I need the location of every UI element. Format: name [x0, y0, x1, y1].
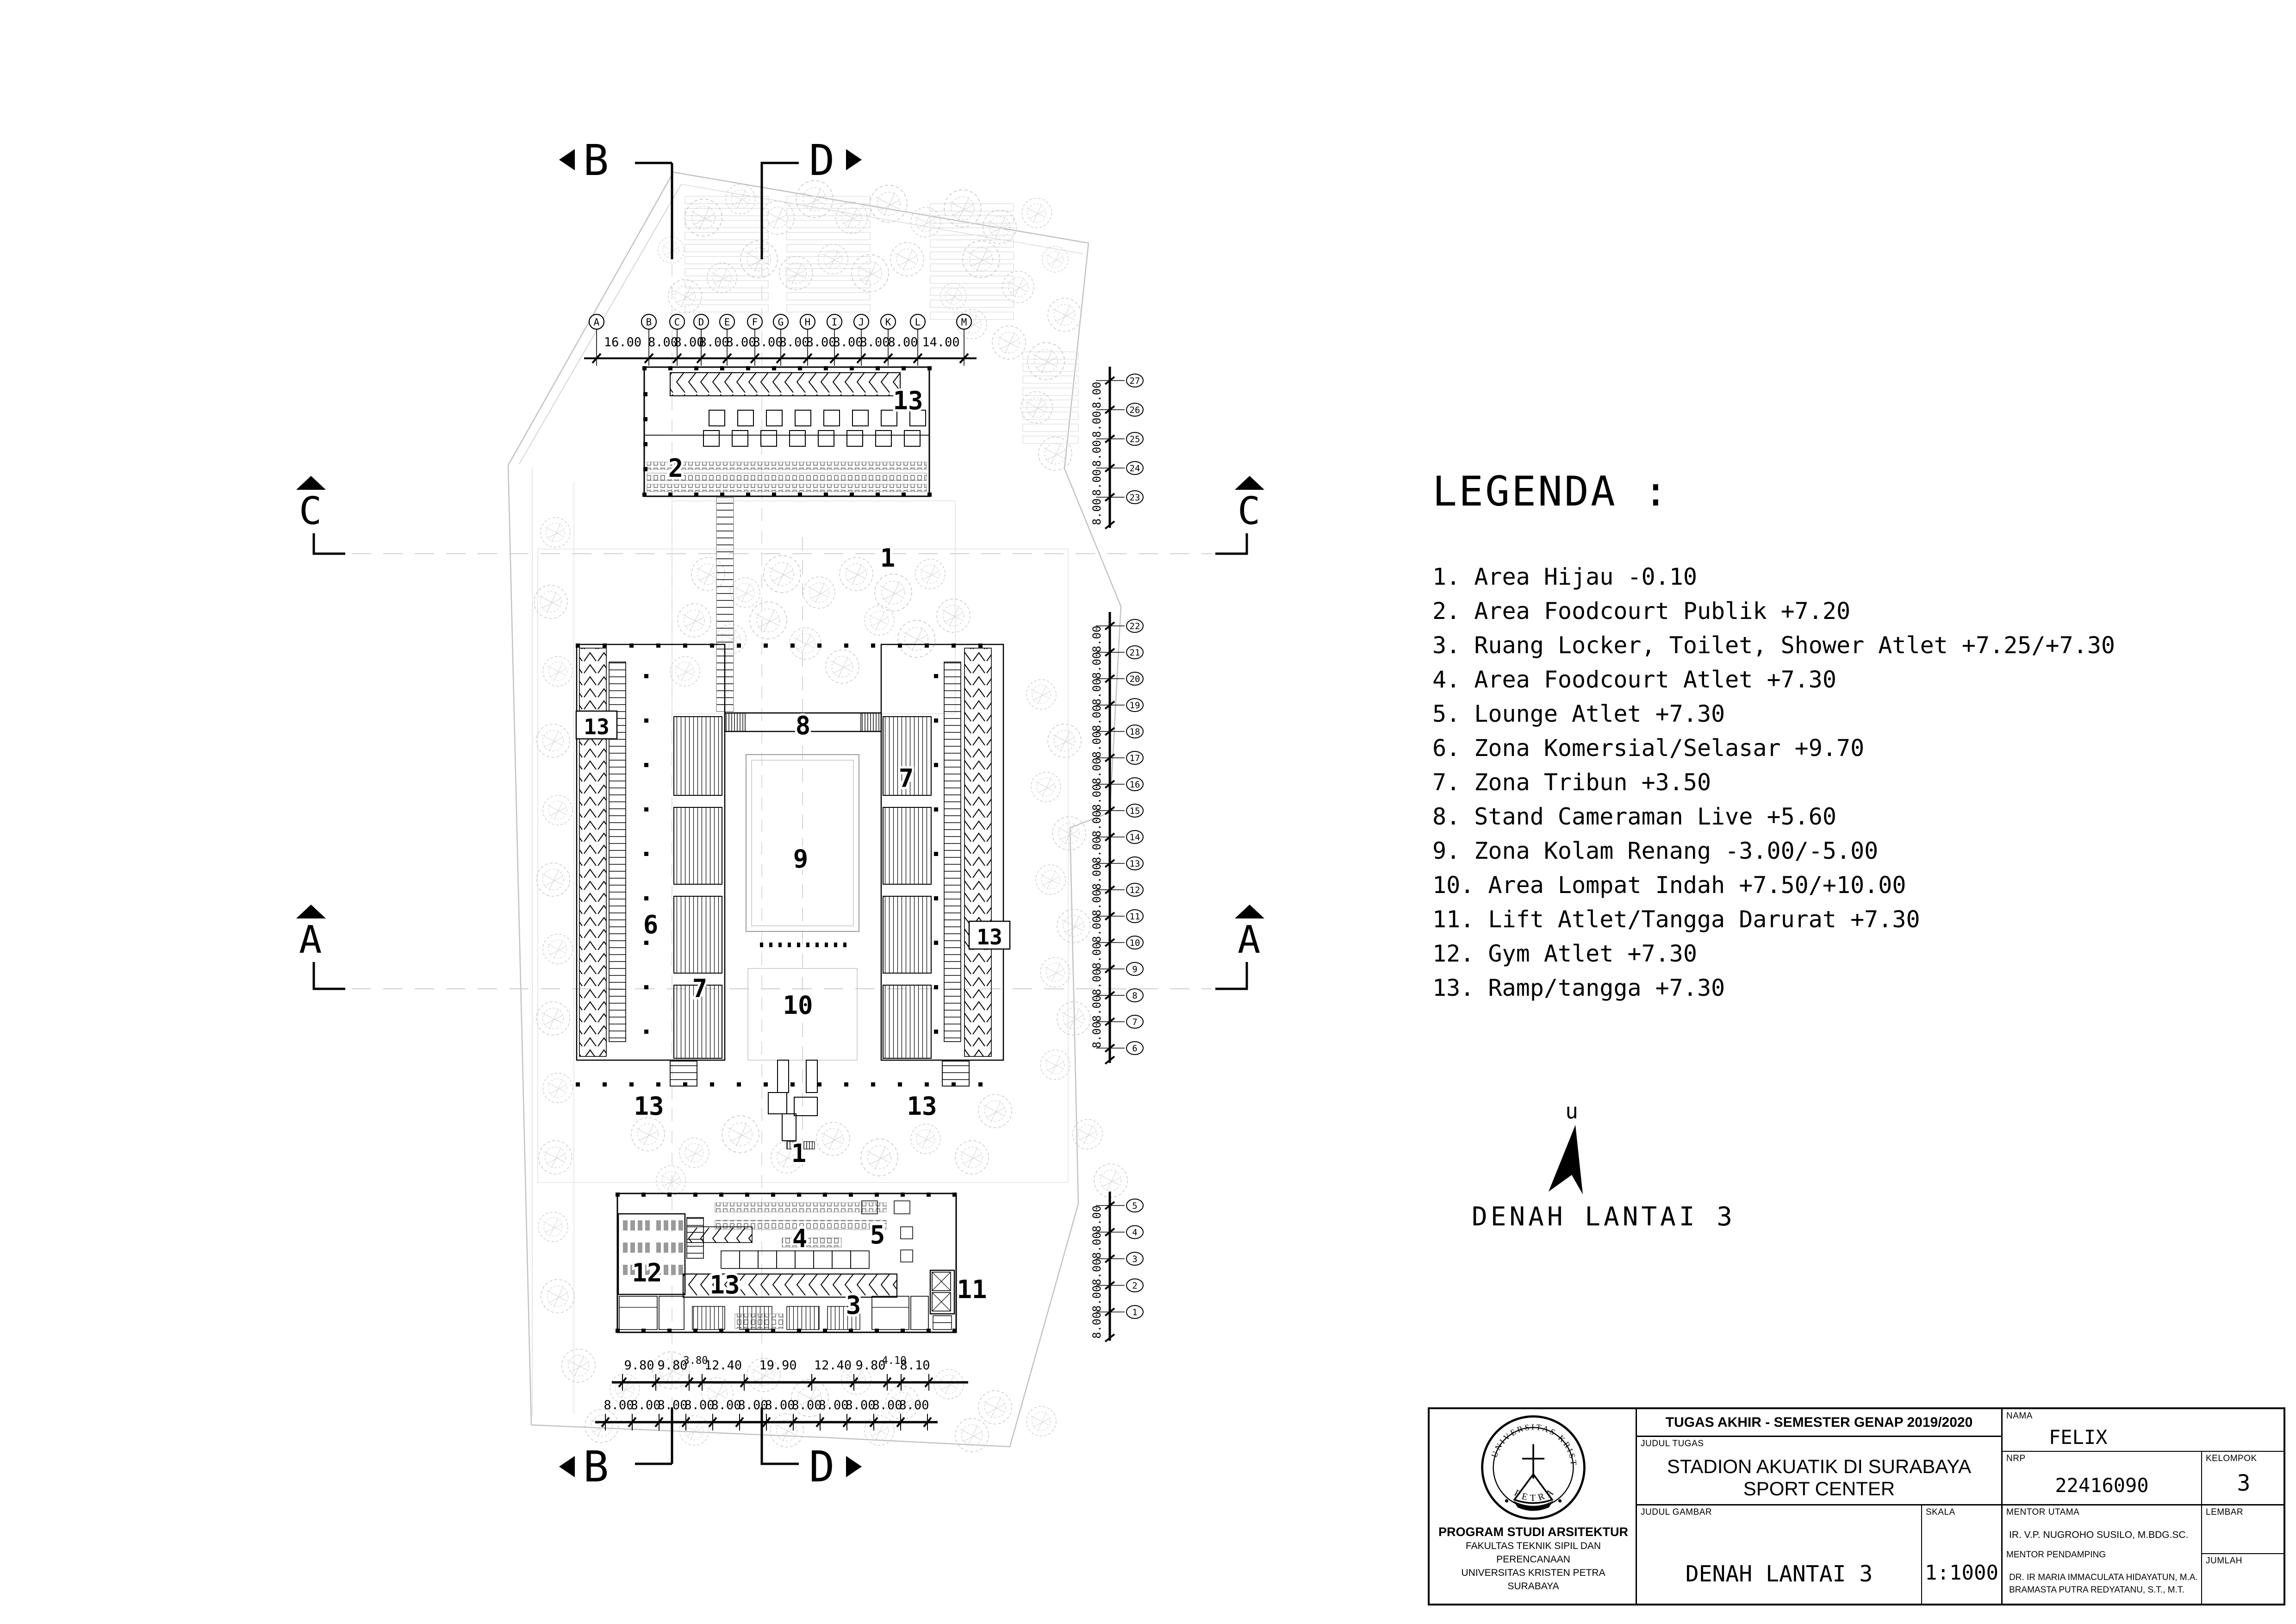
dim-label: 8.00: [1090, 1259, 1103, 1286]
grid-letter: H: [805, 317, 811, 328]
tree-icon: [726, 184, 755, 214]
dim-label: 8.00: [888, 335, 918, 350]
svg-text:B: B: [583, 136, 609, 185]
plan-label: 7: [692, 974, 708, 1003]
tree-icon: [865, 606, 894, 635]
tree-icon: [1036, 865, 1065, 894]
grid-bubble-number: 22: [1130, 621, 1140, 631]
section-marker-c-right: C: [1215, 476, 1264, 554]
tree-icon: [543, 1073, 572, 1103]
svg-text:C: C: [299, 489, 322, 533]
grid-bubble-number: 8: [1132, 991, 1137, 1001]
tree-icon: [934, 1369, 964, 1399]
section-marker-a-right: A: [1215, 905, 1264, 989]
drawing-caption: DENAH LANTAI 3: [1472, 1202, 1736, 1232]
tree-icon: [543, 656, 572, 686]
grid-letter: K: [885, 317, 891, 328]
student-name: FELIX: [2049, 1426, 2285, 1449]
dim-label: 8.00: [1090, 626, 1103, 653]
dim-label: 8.00: [1090, 1206, 1103, 1232]
grid-letter: L: [915, 317, 921, 328]
section-cut-lines: [352, 264, 1212, 1403]
dim-label: 8.00: [1090, 1022, 1103, 1049]
pool-zone: [746, 755, 859, 1149]
grid-letter: J: [859, 317, 865, 328]
tree-icon: [562, 1349, 595, 1382]
university-logo-icon: UNIVERSITAS KRISTEN PETRA: [1478, 1412, 1589, 1523]
tree-icon: [940, 283, 966, 309]
grid-letter: G: [778, 317, 784, 328]
dim-label: 8.00: [699, 335, 729, 350]
tree-icon: [1052, 817, 1086, 850]
plan-label: 4: [792, 1224, 808, 1253]
plan-label: 5: [870, 1220, 885, 1249]
svg-text:u: u: [1565, 1099, 1578, 1124]
dim-label: 19.90: [759, 1358, 796, 1373]
section-marker-b-bottom: B: [559, 1407, 672, 1492]
legend-item: 1. Area Hijau -0.10: [1432, 560, 2242, 594]
dim-label: 8.00: [726, 335, 756, 350]
tree-icon: [840, 557, 873, 591]
plan-label: 7: [899, 764, 914, 793]
dim-label: 8.00: [818, 1398, 848, 1412]
svg-text:D: D: [809, 136, 834, 185]
dim-label: 8.00: [738, 1398, 768, 1412]
plan-label: 10: [783, 991, 813, 1020]
grid-letter: F: [752, 317, 758, 328]
grid-bubble-number: 7: [1132, 1017, 1137, 1027]
tree-icon: [770, 1414, 803, 1447]
tree-icon: [911, 207, 940, 237]
grid-bubble-number: 14: [1130, 832, 1140, 843]
plan-label: 3: [846, 1291, 861, 1320]
legend: LEGENDA : 1. Area Hijau -0.102. Area Foo…: [1432, 468, 2242, 1005]
dim-label: 8.00: [1090, 1312, 1103, 1339]
student-id: 22416090: [2003, 1474, 2201, 1497]
dim-label: 8.00: [753, 335, 783, 350]
plan-label: 1: [880, 543, 896, 573]
tree-icon: [1039, 437, 1072, 470]
dim-label: 8.00: [791, 1398, 821, 1412]
dim-label: 8.00: [1090, 1285, 1103, 1312]
dim-label: 8.00: [1090, 469, 1103, 496]
legend-item: 11. Lift Atlet/Tangga Darurat +7.30: [1432, 902, 2242, 937]
tree-icon: [761, 201, 794, 234]
dim-label: 9.80: [624, 1358, 654, 1373]
tree-icon: [539, 1141, 572, 1174]
grid-bubble-number: 10: [1130, 938, 1140, 948]
svg-text:A: A: [299, 918, 322, 962]
tree-icon: [1040, 957, 1070, 987]
tree-icon: [538, 1212, 568, 1242]
tree-icon: [890, 243, 924, 276]
tree-icon: [750, 602, 787, 639]
tree-icon: [679, 1138, 709, 1168]
grid-bubble-number: 16: [1130, 780, 1140, 790]
dim-label: 8.00: [648, 335, 678, 350]
plan-label: 6: [643, 910, 659, 939]
section-marker-a-left: A: [296, 905, 345, 989]
legend-item: 12. Gym Atlet +7.30: [1432, 937, 2242, 971]
legend-item: 3. Ruang Locker, Toilet, Shower Atlet +7…: [1432, 628, 2242, 662]
dim-label: 8.00: [845, 1398, 875, 1412]
plan-label: 13: [584, 714, 609, 739]
dim-label: 12.40: [814, 1358, 852, 1373]
plan-label: 1: [791, 1139, 807, 1168]
legend-title: LEGENDA :: [1432, 468, 2242, 515]
tree-icon: [543, 795, 572, 825]
tree-icon: [536, 1002, 570, 1035]
tree-icon: [818, 244, 848, 274]
building-athlete-block: [617, 1193, 956, 1332]
tree-icon: [730, 578, 760, 607]
dim-label: 8.00: [1090, 499, 1103, 525]
grid-letter: D: [698, 317, 704, 328]
scale-value: 1:1000: [1922, 1561, 2001, 1585]
plan-label: 13: [907, 1092, 937, 1121]
tree-icon: [1027, 1406, 1056, 1436]
tree-icon: [826, 650, 859, 683]
dim-label: 12.40: [704, 1358, 742, 1373]
tree-icon: [816, 1122, 850, 1156]
dim-label: 8.00: [1090, 969, 1103, 996]
tree-icon: [536, 724, 570, 757]
dim-label: 16.00: [604, 335, 641, 350]
tree-icon: [1048, 724, 1081, 757]
plan-label: 12: [632, 1258, 662, 1287]
grid-bubble-number: 26: [1130, 405, 1140, 415]
tree-icon: [1048, 298, 1081, 331]
tree-icon: [955, 1141, 989, 1174]
dim-label: 8.00: [1090, 811, 1103, 837]
tree-icon: [722, 1116, 759, 1153]
legend-item: 6. Zona Komersial/Selasar +9.70: [1432, 731, 2242, 765]
dim-label: 8.00: [1090, 916, 1103, 943]
nama-cell: NAMA FELIX: [2003, 1409, 2285, 1452]
tree-icon: [534, 585, 567, 618]
tree-icon: [1031, 772, 1061, 802]
section-marker-b-top: B: [559, 136, 672, 259]
grid-bubble-number: 6: [1132, 1043, 1137, 1054]
grid-bubble-number: 24: [1130, 463, 1140, 474]
grid-bubble-number: 20: [1130, 674, 1140, 684]
dim-label: 14.00: [922, 335, 959, 350]
legend-item: 13. Ramp/tangga +7.30: [1432, 971, 2242, 1005]
plan-label: 8: [796, 711, 811, 740]
plan-label: 13: [893, 386, 923, 415]
dim-label: 8.00: [1090, 411, 1103, 438]
skala-cell: SKALA 1:1000: [1922, 1505, 2003, 1604]
grid-bubble-number: 19: [1130, 700, 1140, 711]
tree-icon: [861, 1139, 898, 1176]
building-foodcourt-publik: [644, 367, 929, 496]
mentor-cell: MENTOR UTAMA IR. V.P. NUGROHO SUSILO, M.…: [2003, 1505, 2202, 1604]
grid-bubble-number: 15: [1130, 806, 1140, 816]
tree-icon: [915, 559, 945, 589]
lembar-cell: LEMBAR: [2202, 1505, 2285, 1554]
tree-icon: [779, 256, 813, 290]
dim-label: 8.00: [1090, 1232, 1103, 1259]
project-title-line2: SPORT CENTER: [1637, 1478, 2001, 1500]
tree-icon: [875, 574, 912, 611]
tree-icon: [541, 1280, 574, 1313]
institution-text: PROGRAM STUDI ARSITEKTUR FAKULTAS TEKNIK…: [1430, 1525, 1637, 1593]
plan-label: 13: [709, 1270, 740, 1299]
grid-bubble-number: 4: [1132, 1228, 1137, 1238]
tree-icon: [685, 199, 722, 236]
grid-bubble-number: 5: [1132, 1201, 1137, 1211]
tree-icon: [656, 1166, 686, 1195]
grid-bubble-number: 1: [1132, 1307, 1137, 1318]
dim-label: 8.00: [1090, 995, 1103, 1022]
dim-label: 8.00: [1090, 758, 1103, 785]
tree-icon: [631, 1118, 665, 1151]
kelompok-cell: KELOMPOK 3: [2202, 1452, 2285, 1505]
grid-right-chains: 27262524238.008.008.008.008.002221201918…: [1090, 367, 1143, 1342]
svg-text:C: C: [1238, 489, 1260, 533]
dim-label: 8.00: [779, 335, 809, 350]
grid-letter: I: [832, 317, 838, 328]
plan-label: 2: [668, 454, 684, 483]
dim-label: 9.80: [855, 1358, 885, 1373]
tree-icon: [679, 1416, 709, 1445]
tree-icon: [978, 1391, 1012, 1424]
grid-bubble-number: 21: [1130, 648, 1140, 658]
tree-icon: [543, 934, 572, 964]
tree-icon: [1002, 271, 1034, 303]
tree-icon: [678, 604, 711, 637]
dim-label: 8.00: [684, 1398, 714, 1412]
nrp-cell: NRP 22416090: [2003, 1452, 2202, 1505]
dim-label: 8.00: [872, 1398, 902, 1412]
grid-bubble-number: 2: [1132, 1281, 1137, 1291]
dim-label: 8.00: [1090, 705, 1103, 732]
grid-bubble-number: 18: [1130, 727, 1140, 737]
plan-label: 11: [957, 1275, 987, 1304]
legend-item: 9. Zona Kolam Renang -3.00/-5.00: [1432, 834, 2242, 868]
tree-icon: [870, 185, 907, 222]
grid-bubble-number: 3: [1132, 1254, 1137, 1264]
grid-bubble-number: 27: [1130, 376, 1140, 386]
tree-icon: [937, 599, 970, 632]
tree-icon: [898, 620, 935, 657]
dim-label: 8.00: [1090, 652, 1103, 679]
tree-icon: [992, 326, 1026, 359]
dim-label: 8.00: [630, 1398, 660, 1412]
svg-text:A: A: [1238, 918, 1260, 962]
plan-label: 13: [634, 1092, 664, 1121]
dim-label: 8.00: [806, 335, 836, 350]
dim-label: 8.00: [1090, 784, 1103, 811]
jumlah-cell: JUMLAH: [2202, 1554, 2285, 1604]
tree-icon: [1042, 246, 1068, 272]
tree-icon: [764, 556, 801, 593]
drawing-title-value: DENAH LANTAI 3: [1637, 1561, 1921, 1587]
dim-label: 8.00: [765, 1398, 795, 1412]
dim-label: 8.00: [1090, 837, 1103, 864]
mentor-pendamping: DR. IR MARIA IMMACULATA HIDAYATUN, M.A. …: [2009, 1571, 2201, 1596]
dim-label: 8.00: [1090, 679, 1103, 706]
dims-bottom: 9.809.803.8012.4019.9012.409.804.108.108…: [595, 1355, 968, 1430]
section-marker-c-left: C: [296, 476, 345, 554]
dim-label: 8.00: [859, 335, 890, 350]
title-block-header: TUGAS AKHIR - SEMESTER GENAP 2019/2020: [1637, 1409, 2003, 1437]
grid-bubble-number: 13: [1130, 859, 1140, 869]
tree-icon: [1022, 198, 1052, 228]
tree-icon: [541, 518, 570, 547]
dim-label: 8.00: [899, 1398, 929, 1412]
dim-label: 8.00: [1090, 731, 1103, 758]
grid-letter: M: [961, 317, 967, 328]
tree-icon: [803, 577, 835, 608]
grid-bubble-number: 23: [1130, 493, 1140, 503]
tree-icon: [836, 202, 867, 233]
title-block: UNIVERSITAS KRISTEN PETRA PROGRAM STUDI …: [1428, 1407, 2285, 1605]
group-number: 3: [2202, 1470, 2285, 1496]
dim-label: 8.00: [1090, 890, 1103, 917]
grid-bubble-number: 9: [1132, 964, 1137, 974]
dim-label: 8.00: [1090, 943, 1103, 969]
judul-gambar-cell: JUDUL GAMBAR DENAH LANTAI 3: [1637, 1505, 1922, 1604]
dim-label: 8.00: [1090, 440, 1103, 467]
grid-bubble-number: 12: [1130, 885, 1140, 895]
tree-icon: [911, 1124, 940, 1154]
legend-item: 10. Area Lompat Indah +7.50/+10.00: [1432, 868, 2242, 902]
grid-top: ABCDEFGHIJKLM16.008.008.008.008.008.008.…: [584, 314, 977, 366]
tree-icon: [536, 863, 570, 896]
grid-bubble-number: 11: [1130, 912, 1140, 922]
legend-item: 7. Zona Tribun +3.50: [1432, 765, 2242, 800]
drawing-sheet: { "legend": { "title": "LEGENDA :", "ite…: [0, 0, 2296, 1624]
tree-icon: [1027, 680, 1056, 709]
grid-letter: B: [646, 317, 652, 328]
north-arrow-icon: u: [1549, 1099, 1583, 1194]
dim-label: 8.00: [1090, 382, 1103, 409]
grid-letter: E: [724, 317, 730, 328]
tree-icon: [1040, 1050, 1070, 1080]
dim-label: 8.00: [1090, 863, 1103, 890]
grid-bubble-number: 25: [1130, 434, 1140, 444]
tree-icon: [978, 1094, 1012, 1128]
grid-bubble-number: 17: [1130, 753, 1140, 763]
legend-item: 8. Stand Cameraman Live +5.60: [1432, 800, 2242, 834]
title-block-logo-cell: UNIVERSITAS KRISTEN PETRA PROGRAM STUDI …: [1430, 1409, 1637, 1604]
tree-icon: [1057, 909, 1090, 943]
legend-items: 1. Area Hijau -0.102. Area Foodcourt Pub…: [1432, 560, 2242, 1005]
judul-tugas-cell: JUDUL TUGAS STADION AKUATIK DI SURABAYA …: [1637, 1437, 2003, 1505]
tree-icon: [983, 210, 1016, 244]
project-title-line1: STADION AKUATIK DI SURABAYA: [1637, 1455, 2001, 1478]
mentor-utama: IR. V.P. NUGROHO SUSILO, M.BDG.SC.: [2009, 1530, 2201, 1541]
tree-icon: [955, 1418, 989, 1452]
svg-text:B: B: [583, 1442, 609, 1492]
plan-label: 9: [793, 844, 809, 874]
grid-letter: C: [674, 317, 680, 328]
legend-item: 4. Area Foodcourt Atlet +7.30: [1432, 662, 2242, 697]
tree-icon: [1027, 343, 1064, 380]
grid-letter: A: [594, 317, 600, 328]
legend-item: 5. Lounge Atlet +7.30: [1432, 697, 2242, 731]
svg-text:D: D: [809, 1442, 834, 1492]
dim-label: 8.10: [900, 1358, 930, 1373]
legend-item: 2. Area Foodcourt Publik +7.20: [1432, 594, 2242, 628]
dim-label: 8.00: [711, 1398, 741, 1412]
plan-label: 13: [977, 924, 1002, 949]
dim-label: 8.00: [604, 1398, 634, 1412]
tree-icon: [740, 241, 778, 278]
dim-label: 8.00: [833, 335, 863, 350]
tree-icon: [670, 656, 700, 686]
